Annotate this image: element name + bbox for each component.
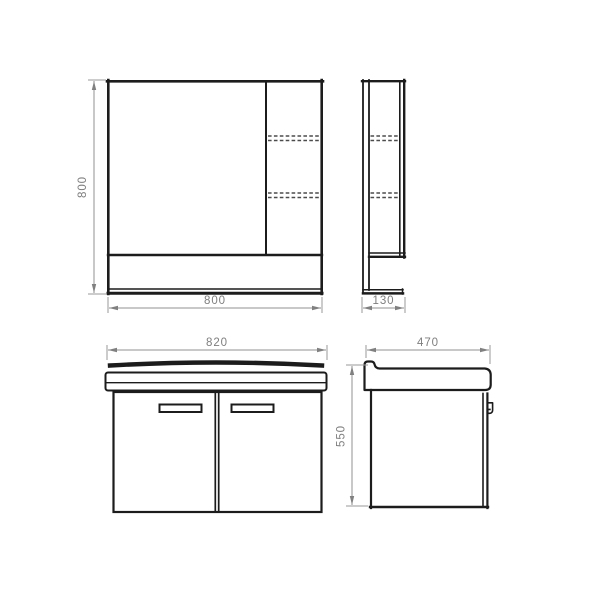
technical-drawing-canvas: 800 800 130 [0,0,600,600]
vanity-side-view [365,362,493,509]
vanity-width-dimension: 820 [107,337,327,360]
vanity-front-view [106,363,327,513]
left-door-handle [160,405,202,413]
vanity-height-dimension: 550 [336,365,369,506]
mirror-front-view [107,80,323,294]
vanity-cabinet-body [114,392,322,512]
mirror-height-dimension: 800 [77,80,106,294]
washbasin-top-rim [110,363,322,366]
vanity-width-label: 820 [206,337,228,349]
mirror-depth-label: 130 [373,295,395,307]
washbasin-side-profile [365,362,491,391]
mirror-depth-dimension: 130 [362,295,405,313]
washbasin-apron [106,373,327,391]
bathroom-furniture-drawing: 800 800 130 [0,0,600,600]
mirror-width-label: 800 [204,295,226,307]
right-door-handle [232,405,274,413]
mirror-height-label: 800 [77,176,89,198]
wall-mount-hook [488,403,493,414]
vanity-height-label: 550 [336,425,348,447]
mirror-width-dimension: 800 [108,295,322,313]
vanity-depth-label: 470 [417,337,439,349]
vanity-depth-dimension: 470 [366,337,490,364]
mirror-side-view [362,80,405,294]
